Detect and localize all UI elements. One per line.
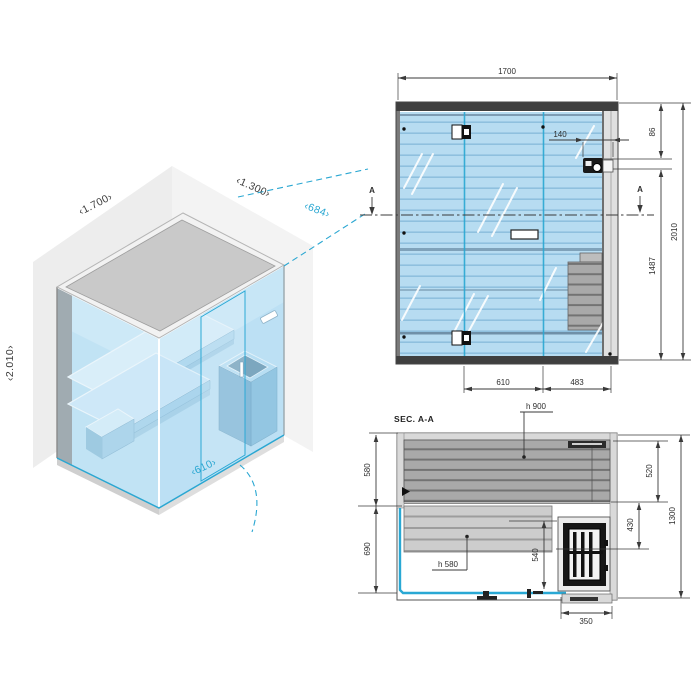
drawing-canvas: ‹1.700› ‹1.300› ‹684› ‹2.010› ‹610› [0,0,700,700]
sauna-technical-drawing: ‹1.700› ‹1.300› ‹684› ‹2.010› ‹610› [0,0,700,700]
section-marker-left: A [369,186,375,215]
isometric-view: ‹1.700› ‹1.300› ‹684› ‹2.010› ‹610› [4,166,368,532]
lower-bench-plan [404,506,552,552]
wall-right [610,433,617,600]
heater-plan [558,517,610,591]
frame-top [396,102,618,111]
hinge-top-icon [452,125,471,139]
svg-text:540: 540 [531,548,540,562]
control-device [583,158,613,173]
dim-lower-height: 1487 [648,170,663,360]
svg-text:1700: 1700 [498,67,516,76]
svg-text:A: A [637,185,643,194]
svg-text:580: 580 [363,463,372,477]
door-handle-elevation [511,230,538,239]
dim-total-width: 1700 [398,67,617,100]
svg-text:86: 86 [648,127,657,136]
svg-text:1487: 1487 [648,257,657,275]
dim-total-depth: 1300 [618,435,690,598]
svg-text:h 900: h 900 [526,402,547,411]
svg-text:h 580: h 580 [438,560,459,569]
dim-side-panel-label: 483 [570,378,584,387]
dim-total-height: 2010 [619,103,691,360]
glass-door [201,291,245,481]
bench-profile [568,253,602,330]
upper-bench-plan [404,440,610,502]
wall-left [397,433,404,508]
dim-door-width: 610 483 [464,366,611,393]
svg-text:520: 520 [645,464,654,478]
dim-back-zone: 580 690 [358,433,402,593]
svg-text:610: 610 [496,378,510,387]
hinge-bottom-icon [452,331,471,345]
iso-door-projection-label: ‹684› [303,200,332,221]
section-marker-right: A [637,185,643,213]
section-plan: SEC. A-A [358,402,690,626]
frame-left [396,111,400,356]
dim-upper-bench-depth: 520 [611,441,668,502]
dim-front-zone-label: 690 [363,542,372,556]
svg-text:430: 430 [626,518,635,532]
section-title: SEC. A-A [394,414,434,424]
svg-text:350: 350 [579,617,593,626]
door-handle [240,362,243,377]
svg-text:1300: 1300 [668,507,677,525]
svg-text:2010: 2010 [670,223,679,241]
wall-top [397,433,617,440]
svg-text:140: 140 [553,130,567,139]
frame-bottom [396,356,618,364]
iso-height-label: ‹2.010› [4,345,16,381]
door-swing-arc [240,465,257,532]
svg-text:A: A [369,186,375,195]
front-elevation: A A 1700 140 86 [360,67,691,393]
